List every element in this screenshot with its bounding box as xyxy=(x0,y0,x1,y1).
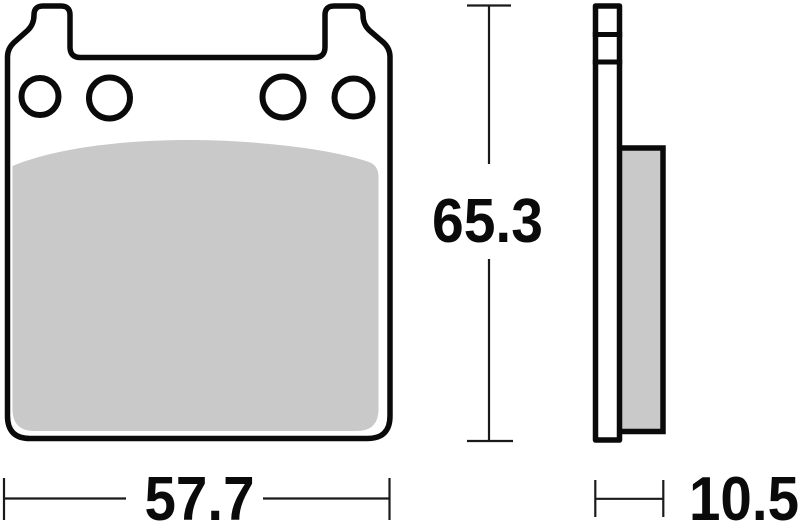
dim-width-label: 57.7 xyxy=(145,465,255,521)
dimension-thickness: 10.5 xyxy=(595,465,799,521)
front-view xyxy=(8,6,391,439)
backplate-side xyxy=(596,6,620,440)
dim-thickness-label: 10.5 xyxy=(689,465,799,521)
friction-pad-front xyxy=(13,140,379,431)
dimension-height: 65.3 xyxy=(432,6,543,442)
side-view xyxy=(593,6,663,440)
rivet-hole-4 xyxy=(335,79,373,117)
rivet-hole-2 xyxy=(89,78,130,119)
dimension-width: 57.7 xyxy=(4,465,390,521)
rivet-hole-3 xyxy=(263,77,304,118)
rivet-hole-1 xyxy=(22,78,59,115)
dim-height-label: 65.3 xyxy=(432,187,543,256)
technical-drawing-canvas: 65.3 57.7 10.5 xyxy=(0,0,800,521)
